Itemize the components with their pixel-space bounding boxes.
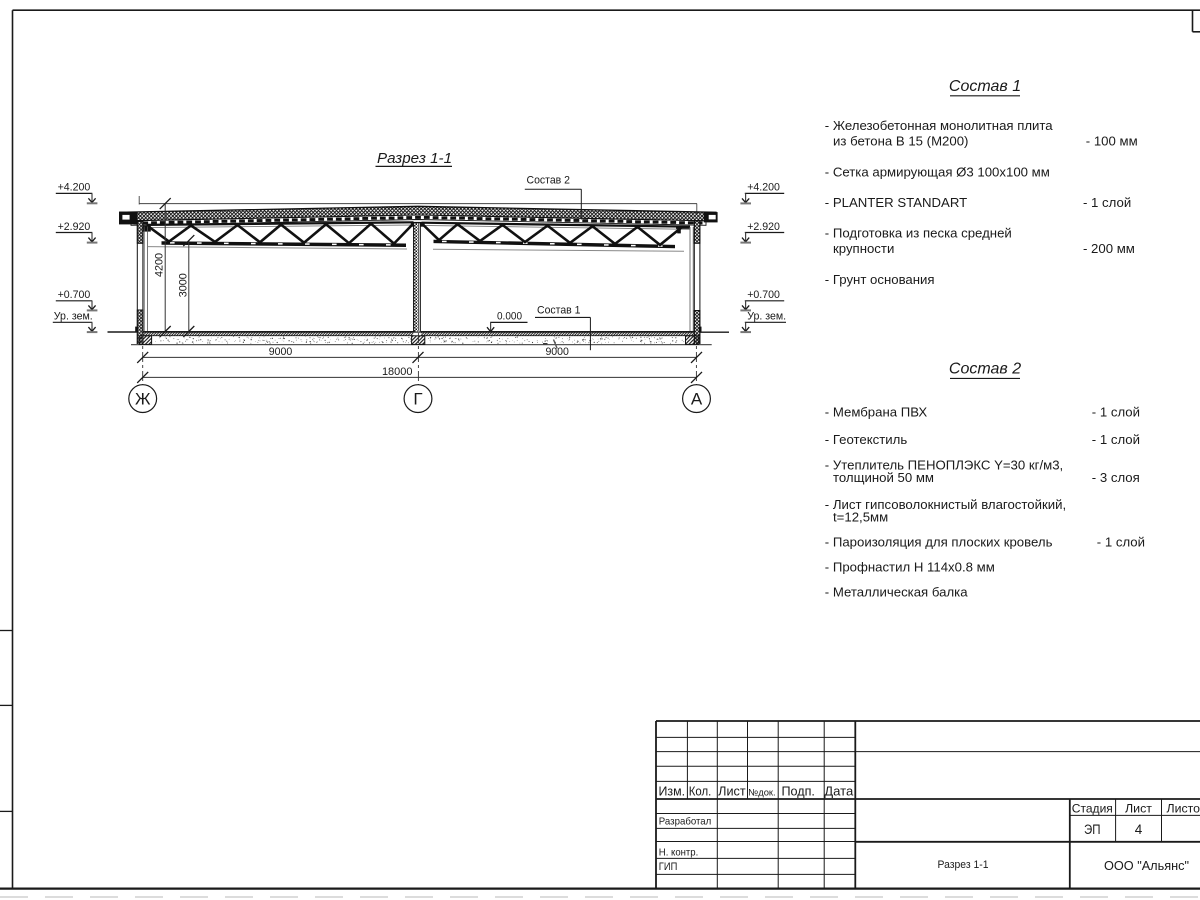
svg-text:№док.: №док.	[748, 787, 776, 798]
svg-text:- 3 слоя: - 3 слоя	[1092, 470, 1140, 485]
svg-text:Разрез 1-1: Разрез 1-1	[938, 859, 989, 871]
svg-text:4: 4	[1135, 822, 1143, 837]
svg-text:- 100 мм: - 100 мм	[1086, 133, 1138, 148]
svg-text:+2.920: +2.920	[58, 221, 91, 233]
svg-text:- Железобетонная монолитная п: - Железобетонная монолитная плита	[825, 118, 1054, 133]
svg-text:ООО "Альянс": ООО "Альянс"	[1104, 858, 1189, 873]
svg-text:Разработал: Разработал	[659, 815, 712, 827]
svg-text:3000: 3000	[177, 273, 189, 297]
svg-text:Г: Г	[413, 390, 422, 409]
svg-text:ЭП: ЭП	[1084, 822, 1101, 837]
svg-text:- Металлическая балка: - Металлическая балка	[825, 584, 968, 599]
svg-text:+0.700: +0.700	[747, 289, 780, 301]
svg-text:- Геотекстиль: - Геотекстиль	[825, 432, 908, 447]
svg-text:Лист: Лист	[718, 783, 746, 798]
svg-text:Н. контр.: Н. контр.	[659, 846, 699, 858]
svg-text:крупности: крупности	[833, 241, 894, 256]
svg-text:t=12,5мм: t=12,5мм	[833, 509, 888, 524]
svg-text:- 1 слой: - 1 слой	[1097, 534, 1145, 549]
svg-text:- Подготовка из песка средней: - Подготовка из песка средней	[825, 226, 1012, 241]
svg-text:- 1 слой: - 1 слой	[1092, 432, 1140, 447]
svg-text:Ур. зем.: Ур. зем.	[747, 311, 786, 323]
svg-text:Ж: Ж	[135, 390, 151, 409]
svg-text:Состав 2: Состав 2	[527, 174, 571, 186]
svg-text:Состав 2: Состав 2	[949, 360, 1021, 377]
svg-text:- Сетка армирующая Ø3 100х100: - Сетка армирующая Ø3 100х100 мм	[825, 165, 1050, 180]
svg-text:- 200 мм: - 200 мм	[1083, 241, 1135, 256]
svg-text:Дата: Дата	[824, 783, 854, 798]
svg-text:Разрез 1-1: Разрез 1-1	[377, 150, 452, 167]
svg-text:- 1 слой: - 1 слой	[1092, 404, 1140, 419]
svg-text:Лист: Лист	[1125, 802, 1153, 816]
svg-text:+4.200: +4.200	[58, 182, 91, 194]
svg-text:+4.200: +4.200	[747, 182, 780, 194]
svg-text:Подп.: Подп.	[781, 783, 815, 798]
svg-text:Стадия: Стадия	[1072, 802, 1113, 816]
svg-text:Состав 1: Состав 1	[537, 304, 581, 316]
svg-text:4200: 4200	[153, 253, 165, 277]
svg-text:- PLANTER STANDART: - PLANTER STANDART	[825, 195, 967, 210]
svg-text:Листов: Листов	[1167, 802, 1200, 816]
svg-text:А: А	[691, 390, 703, 409]
svg-text:Ур. зем.: Ур. зем.	[54, 311, 93, 323]
svg-text:9000: 9000	[545, 346, 569, 358]
svg-text:+0.700: +0.700	[58, 289, 91, 301]
svg-text:Изм.: Изм.	[659, 783, 686, 798]
svg-text:ГИП: ГИП	[659, 861, 678, 873]
svg-text:- 1 слой: - 1 слой	[1083, 195, 1131, 210]
svg-text:9000: 9000	[269, 346, 293, 358]
svg-text:18000: 18000	[382, 366, 413, 378]
svg-text:- Мембрана ПВХ: - Мембрана ПВХ	[825, 404, 928, 419]
svg-text:- Профнастил Н 114х0.8 мм: - Профнастил Н 114х0.8 мм	[825, 560, 995, 575]
svg-text:толщиной 50 мм: толщиной 50 мм	[833, 470, 934, 485]
svg-text:0.000: 0.000	[497, 311, 522, 323]
svg-text:+2.920: +2.920	[747, 221, 780, 233]
svg-text:- Грунт основания: - Грунт основания	[825, 272, 935, 287]
svg-text:Кол.: Кол.	[689, 783, 712, 798]
svg-text:- Пароизоляция для плоских кро: - Пароизоляция для плоских кровель	[825, 534, 1053, 549]
svg-text:Состав 1: Состав 1	[949, 78, 1021, 95]
svg-text:из бетона В 15 (М200): из бетона В 15 (М200)	[833, 133, 968, 148]
